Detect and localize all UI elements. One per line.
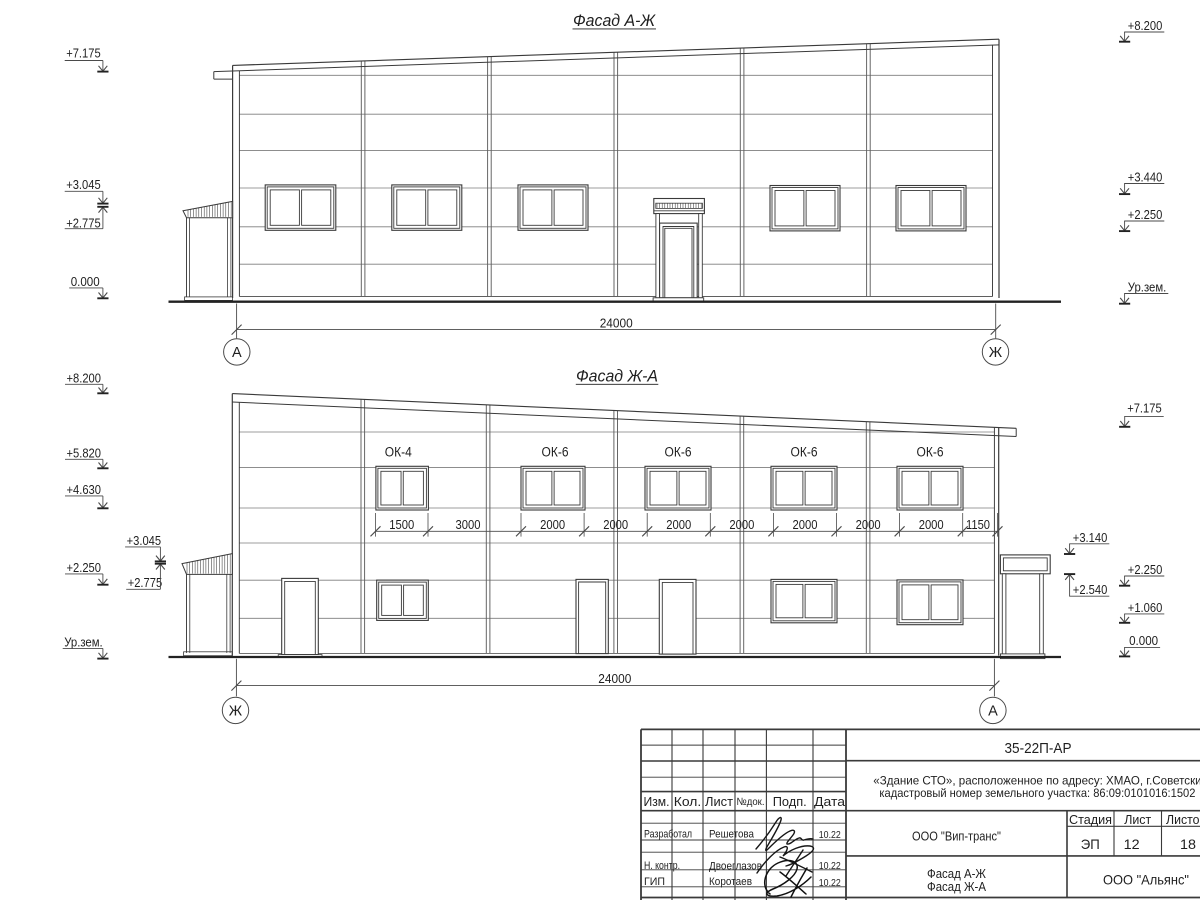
svg-text:Коротаев: Коротаев bbox=[709, 876, 752, 888]
svg-text:Изм.: Изм. bbox=[644, 794, 670, 809]
svg-text:+8.200: +8.200 bbox=[67, 371, 102, 385]
svg-text:2000: 2000 bbox=[666, 518, 691, 532]
svg-text:10.22: 10.22 bbox=[819, 860, 841, 872]
svg-text:+3.440: +3.440 bbox=[1128, 171, 1163, 185]
svg-text:Ур.зем.: Ур.зем. bbox=[1128, 281, 1167, 295]
svg-text:+8.200: +8.200 bbox=[1128, 19, 1163, 33]
svg-text:+4.630: +4.630 bbox=[67, 483, 102, 497]
svg-text:Лист: Лист bbox=[1124, 812, 1151, 827]
svg-text:+2.775: +2.775 bbox=[128, 576, 163, 590]
svg-text:Листов: Листов bbox=[1166, 812, 1200, 827]
svg-text:А: А bbox=[232, 345, 242, 361]
svg-text:Фасад А-Ж: Фасад А-Ж bbox=[927, 867, 986, 881]
svg-text:+5.820: +5.820 bbox=[67, 446, 102, 460]
svg-text:Решетова: Решетова bbox=[709, 828, 755, 840]
svg-text:ГИП: ГИП bbox=[644, 876, 665, 888]
svg-text:2000: 2000 bbox=[729, 518, 754, 532]
svg-text:ЭП: ЭП bbox=[1081, 836, 1100, 852]
svg-text:+2.540: +2.540 bbox=[1073, 583, 1108, 597]
svg-text:+7.175: +7.175 bbox=[1127, 402, 1162, 416]
svg-text:Стадия: Стадия bbox=[1069, 812, 1112, 827]
svg-text:12: 12 bbox=[1124, 836, 1140, 852]
svg-text:кадастровый номер земельного у: кадастровый номер земельного участка: 86… bbox=[879, 786, 1195, 800]
svg-text:А: А bbox=[988, 703, 998, 719]
svg-text:+3.140: +3.140 bbox=[1073, 531, 1108, 545]
svg-text:Дата: Дата bbox=[814, 794, 846, 809]
svg-text:+1.060: +1.060 bbox=[1128, 601, 1163, 615]
svg-text:10.22: 10.22 bbox=[819, 829, 841, 841]
svg-text:Н. контр.: Н. контр. bbox=[644, 860, 680, 872]
svg-text:1150: 1150 bbox=[966, 518, 990, 532]
svg-text:ОК-6: ОК-6 bbox=[917, 445, 944, 460]
svg-text:Подп.: Подп. bbox=[773, 794, 807, 809]
svg-text:2000: 2000 bbox=[540, 518, 565, 532]
svg-text:2000: 2000 bbox=[793, 518, 818, 532]
svg-text:2000: 2000 bbox=[603, 518, 628, 532]
svg-text:+2.250: +2.250 bbox=[1128, 208, 1163, 222]
svg-text:ОК-6: ОК-6 bbox=[791, 445, 818, 460]
svg-text:+2.250: +2.250 bbox=[1128, 563, 1163, 577]
svg-text:0.000: 0.000 bbox=[1129, 634, 1158, 648]
svg-text:10.22: 10.22 bbox=[819, 877, 841, 889]
svg-text:35-22П-АР: 35-22П-АР bbox=[1005, 740, 1072, 757]
svg-text:+3.045: +3.045 bbox=[66, 178, 101, 192]
svg-text:+3.045: +3.045 bbox=[127, 534, 162, 548]
svg-text:Ж: Ж bbox=[229, 703, 243, 719]
svg-text:ОК-6: ОК-6 bbox=[542, 445, 569, 460]
svg-text:ОК-4: ОК-4 bbox=[385, 445, 412, 460]
svg-text:Фасад Ж-А: Фасад Ж-А bbox=[576, 367, 658, 385]
svg-text:Кол.: Кол. bbox=[674, 794, 702, 809]
svg-text:№док.: №док. bbox=[737, 796, 765, 808]
svg-text:3000: 3000 bbox=[456, 518, 481, 532]
svg-text:Фасад А-Ж: Фасад А-Ж bbox=[573, 12, 656, 30]
svg-text:24000: 24000 bbox=[600, 317, 633, 331]
svg-text:Разработал: Разработал bbox=[644, 828, 692, 840]
svg-text:+7.175: +7.175 bbox=[66, 47, 101, 61]
svg-text:2000: 2000 bbox=[919, 518, 944, 532]
svg-text:ООО "Альянс": ООО "Альянс" bbox=[1103, 872, 1189, 888]
svg-text:18: 18 bbox=[1180, 836, 1196, 852]
svg-text:0.000: 0.000 bbox=[71, 275, 100, 289]
svg-text:ОК-6: ОК-6 bbox=[665, 445, 692, 460]
svg-text:ООО "Вип-транс": ООО "Вип-транс" bbox=[912, 829, 1001, 843]
svg-text:+2.250: +2.250 bbox=[67, 561, 102, 575]
svg-text:Лист: Лист bbox=[705, 794, 733, 809]
svg-text:Фасад Ж-А: Фасад Ж-А bbox=[927, 880, 987, 894]
svg-text:24000: 24000 bbox=[598, 672, 631, 686]
svg-text:1500: 1500 bbox=[389, 518, 414, 532]
svg-text:Ур.зем.: Ур.зем. bbox=[64, 635, 103, 649]
svg-text:Двоеглазов: Двоеглазов bbox=[709, 861, 762, 873]
svg-text:Ж: Ж bbox=[989, 345, 1003, 361]
svg-text:2000: 2000 bbox=[856, 518, 881, 532]
